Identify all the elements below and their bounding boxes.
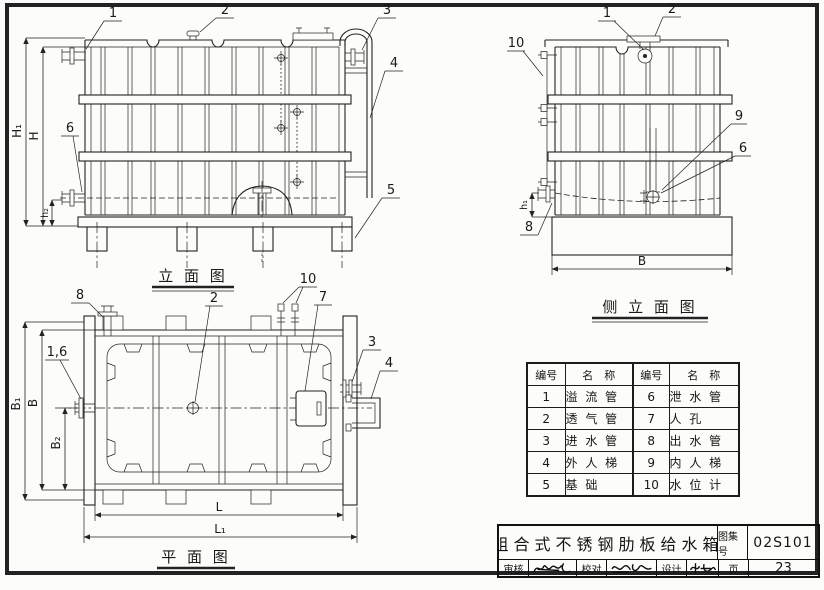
table-row: 1 溢 流 管 6 泄 水 管 [527, 386, 739, 408]
table-row: 4 外 人 梯 9 内 人 梯 [527, 452, 739, 474]
side-elevation-view: 1 2 10 9 6 8 h₁ B 侧 立 面 图 [507, 2, 751, 322]
lower-band [548, 152, 732, 161]
checker-signature [607, 560, 657, 576]
lower-band [79, 152, 351, 161]
gauge-fittings [277, 304, 299, 336]
drawing-canvas: 1 2 3 4 5 6 H₁ H h₂ 立 面 图 [0, 0, 824, 590]
col-header-name-b: 名 称 [669, 363, 739, 386]
partition-lines [153, 336, 287, 484]
dim-label-B: B [26, 399, 40, 407]
checker-label: 校对 [577, 560, 607, 576]
callout-8: 8 [76, 288, 84, 303]
vent-pipe [186, 31, 200, 40]
right-end-rail [343, 316, 357, 505]
dim-label-H: H [27, 131, 41, 140]
callout-8: 8 [525, 220, 533, 235]
rib-lines [576, 47, 700, 215]
page-number: 23 [749, 560, 818, 576]
designer-label: 设计 [657, 560, 687, 576]
atlas-number: 02S101 [748, 526, 818, 559]
col-header-no-a: 编号 [527, 363, 565, 386]
callout-3: 3 [383, 3, 391, 18]
outlet-pipe [538, 186, 555, 202]
callout-1-6: 1,6 [47, 345, 68, 360]
dim-label-L1: L₁ [214, 522, 226, 536]
parts-table-header: 编号 名 称 编号 名 称 [527, 363, 739, 386]
callout-10: 10 [300, 272, 317, 287]
side-view-title: 侧 立 面 图 [602, 298, 697, 316]
reviewer-signature [529, 560, 577, 576]
dim-label-L: L [216, 500, 223, 514]
col-header-name-a: 名 称 [565, 363, 633, 386]
reviewer-label: 审核 [499, 560, 529, 576]
designer-signature-icon [688, 561, 718, 576]
dim-label-h1s: h₁ [519, 200, 530, 210]
upper-band [548, 95, 732, 104]
callout-1: 1 [109, 6, 117, 21]
reviewer-signature-icon [531, 561, 575, 576]
inlet-pipe [345, 49, 364, 65]
callout-10: 10 [508, 36, 525, 51]
table-row: 5 基 础 10 水 位 计 [527, 474, 739, 497]
callout-6: 6 [66, 121, 74, 136]
overflow-pipe [62, 48, 85, 64]
table-row: 2 透 气 管 7 人 孔 [527, 408, 739, 430]
callout-2: 2 [221, 3, 229, 18]
top-manhole-cover [293, 28, 333, 40]
designer-signature [687, 560, 719, 576]
upper-band [79, 95, 351, 104]
water-level-gauge [538, 52, 557, 186]
elevation-view-title: 立 面 图 [158, 267, 228, 285]
dim-label-H1: H₁ [10, 124, 24, 138]
table-row: 3 进 水 管 8 出 水 管 [527, 430, 739, 452]
callout-2: 2 [668, 2, 676, 17]
parts-table: 编号 名 称 编号 名 称 1 溢 流 管 6 泄 水 管 2 透 气 管 7 … [526, 362, 740, 497]
callout-5: 5 [387, 183, 395, 198]
col-header-no-b: 编号 [633, 363, 669, 386]
vent-pipe-plan [186, 401, 200, 415]
foundation-block [552, 217, 732, 255]
plan-view-title: 平 面 图 [161, 548, 231, 566]
callout-4: 4 [385, 356, 393, 371]
dim-label-h2: h₂ [40, 208, 51, 218]
drain-fitting [640, 190, 660, 204]
callout-2: 2 [210, 291, 218, 306]
title-block: 组合式不锈钢肋板给水箱 图集号 02S101 审核 校对 设计 页 23 [497, 524, 820, 578]
drawing-sheet: 1 2 3 4 5 6 H₁ H h₂ 立 面 图 [0, 0, 824, 590]
checker-signature-icon [609, 561, 655, 576]
dim-label-B1: B₁ [9, 397, 23, 410]
left-end-rail [84, 316, 95, 505]
callout-7: 7 [319, 290, 327, 305]
dim-label-B: B [638, 254, 646, 268]
callout-9: 9 [735, 109, 743, 124]
foundation-legs [78, 215, 352, 268]
page-label: 页 [719, 560, 749, 576]
dim-label-B2: B₂ [49, 436, 63, 449]
rib-lines [101, 47, 316, 215]
plan-view: 8 2 10 7 3 4 1,6 B₁ B B₂ L L₁ 平 面 图 [9, 272, 398, 572]
callout-1: 1 [603, 6, 611, 21]
elevation-view: 1 2 3 4 5 6 H₁ H h₂ 立 面 图 [10, 3, 403, 291]
callout-4: 4 [390, 56, 398, 71]
drawing-title: 组合式不锈钢肋板给水箱 [499, 526, 718, 559]
manhole [290, 391, 326, 426]
atlas-number-label: 图集号 [718, 526, 748, 559]
callout-6: 6 [739, 141, 747, 156]
inlet-pipe-plan [340, 380, 361, 397]
callout-3: 3 [368, 335, 376, 350]
